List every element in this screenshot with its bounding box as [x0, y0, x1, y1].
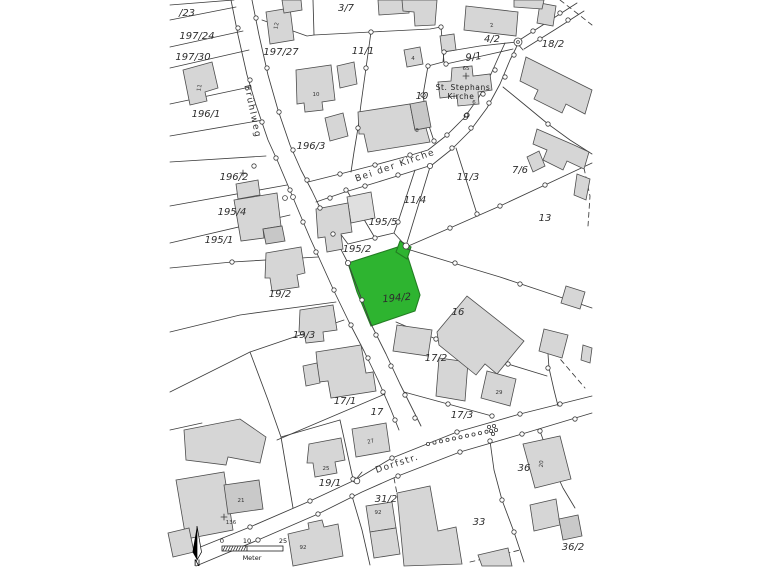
building [464, 6, 518, 36]
building [370, 528, 400, 558]
building [397, 486, 462, 566]
boundary-point [389, 364, 393, 368]
boundary-bead [459, 436, 462, 439]
boundary-point [256, 538, 260, 542]
boundary-point [366, 356, 370, 360]
building-number-11: 11 [196, 84, 203, 92]
boundary-bead [452, 437, 455, 440]
parcel-label-31-2: 31/2 [375, 494, 397, 505]
building-number-8: 8 [415, 128, 419, 134]
boundary-point [354, 478, 360, 484]
boundary-point [444, 62, 448, 66]
boundary-point [360, 298, 364, 302]
boundary-point [236, 26, 240, 30]
boundary-point [432, 139, 436, 143]
boundary-point [316, 512, 320, 516]
boundary-point [274, 156, 278, 160]
boundary-bead [487, 425, 490, 428]
boundary-point [301, 220, 305, 224]
boundary-point [439, 25, 443, 29]
building-number-65: 65 [463, 66, 470, 72]
building [581, 345, 592, 363]
building [288, 520, 343, 566]
boundary-point [345, 260, 350, 265]
building [559, 515, 582, 540]
parcel-label-17-2: 17/2 [425, 353, 447, 364]
boundary-point [308, 499, 312, 503]
boundary-point [277, 110, 281, 114]
boundary-point [512, 53, 516, 57]
parcel-label-9-1: 9/1 [465, 51, 482, 64]
boundary-point [518, 412, 522, 416]
building [366, 502, 396, 532]
building [316, 345, 376, 398]
boundary-point [455, 430, 459, 434]
boundary-point [434, 337, 438, 341]
building [184, 419, 266, 465]
north-label: N [194, 559, 200, 567]
parcel-label-197-27: 197/27 [263, 47, 299, 58]
boundary-bead [439, 440, 442, 443]
scale-tick-0: 0 [220, 537, 224, 545]
parcel-label-13: 13 [539, 213, 552, 224]
parcel-boundary-line [428, 52, 444, 66]
boundary-point [349, 323, 353, 327]
parcel-label-11-4: 11/4 [404, 195, 426, 206]
highlighted-parcel-194-2[interactable] [348, 245, 420, 326]
parcel-label-195-2: 195/2 [343, 244, 372, 255]
parcel-boundary-line [406, 167, 430, 246]
parcel-label-36-2: 36/2 [562, 542, 584, 553]
boundary-bead [472, 433, 475, 436]
boundary-point [518, 282, 522, 286]
boundary-point [446, 402, 450, 406]
boundary-point [252, 164, 256, 168]
boundary-point [566, 18, 570, 22]
boundary-point [448, 226, 452, 230]
building [530, 499, 560, 531]
building [263, 226, 285, 244]
parcel-label-33: 33 [473, 517, 486, 528]
boundary-point [506, 362, 510, 366]
parcel-label-10: 10 [416, 91, 429, 102]
boundary-bead [492, 424, 495, 427]
boundary-point [350, 494, 354, 498]
boundary-point [538, 429, 542, 433]
boundary-point [230, 260, 234, 264]
boundary-point [318, 206, 322, 210]
parcel-label-36: 36 [518, 463, 531, 474]
boundary-point [517, 41, 520, 44]
street-label-Br-hlweg: Brühlweg [241, 84, 262, 139]
boundary-point [381, 390, 385, 394]
parcel-label-19-2: 19/2 [269, 289, 291, 300]
parcel-boundary-line [170, 156, 266, 162]
parcel-label-17-3: 17/3 [451, 410, 473, 421]
boundary-point [445, 133, 449, 137]
boundary-point [426, 64, 430, 68]
parcel-boundary-line [170, 0, 234, 5]
cadastral-map: /23197/24197/30196/1197/273/711/14/218/2… [0, 0, 768, 567]
boundary-point [573, 417, 577, 421]
boundary-point [344, 188, 348, 192]
boundary-point [374, 333, 378, 337]
building [478, 548, 512, 566]
boundary-point [248, 525, 252, 529]
parcel-label-7-6: 7/6 [512, 165, 528, 176]
boundary-bead [485, 430, 488, 433]
boundary-point [283, 196, 288, 201]
boundary-point [254, 16, 258, 20]
boundary-point [500, 498, 504, 502]
boundary-point [493, 68, 497, 72]
boundary-point [512, 530, 516, 534]
boundary-bead [433, 441, 436, 444]
boundary-bead [491, 432, 494, 435]
parcel-label-9: 9 [463, 112, 469, 123]
boundary-point [546, 366, 550, 370]
building [303, 363, 320, 386]
parcel-label-195-5: 195/5 [369, 217, 398, 228]
boundary-point [487, 101, 491, 105]
boundary-point [503, 75, 507, 79]
map-canvas: /23197/24197/30196/1197/273/711/14/218/2… [0, 0, 768, 567]
parcel-boundary-line [313, 0, 314, 35]
parcel-label-18-2: 18/2 [542, 39, 564, 50]
boundary-point [403, 393, 407, 397]
building-number-20: 20 [539, 460, 546, 468]
boundary-point [396, 474, 400, 478]
boundary-point [291, 148, 295, 152]
boundary-point [520, 432, 524, 436]
parcel-label-17-1: 17/1 [334, 396, 356, 407]
boundary-point [265, 66, 269, 70]
boundary-point [403, 243, 409, 249]
building [481, 371, 516, 406]
parcel-label-17: 17 [371, 407, 384, 418]
building [527, 151, 545, 172]
parcel-label-197-30: 197/30 [175, 52, 210, 63]
parcel-label--23: /23 [178, 8, 195, 19]
building [296, 65, 335, 112]
building-number-21: 21 [238, 498, 245, 504]
parcel-label-197-24: 197/24 [179, 31, 214, 42]
building [224, 480, 263, 514]
boundary-point [291, 195, 296, 200]
building-number-92: 92 [375, 510, 382, 516]
church-name-line2: Kirche [447, 92, 474, 101]
scale-tick-25: 25 [279, 537, 287, 545]
boundary-point [331, 232, 335, 236]
building-number-29: 29 [496, 390, 503, 396]
boundary-point [475, 212, 479, 216]
boundary-point [338, 172, 342, 176]
parcel-label-196-1: 196/1 [192, 109, 221, 120]
parcel-label-195-1: 195/1 [205, 235, 234, 246]
scale-tick-10: 10 [243, 537, 251, 545]
boundary-point [332, 288, 336, 292]
street-label-Bei-der-Kirche: Bei der Kirche [354, 148, 437, 185]
boundary-point [481, 92, 485, 96]
building-number-92: 92 [300, 545, 307, 551]
parcel-label-16: 16 [452, 307, 465, 318]
boundary-point [363, 184, 367, 188]
boundary-point [458, 450, 462, 454]
building [574, 174, 590, 200]
parcel-label-196-2: 196/2 [220, 172, 249, 183]
boundary-bead [489, 429, 492, 432]
building-number-25: 25 [323, 466, 330, 472]
boundary-point [356, 126, 360, 130]
boundary-bead [494, 428, 497, 431]
parcel-boundary-line [170, 120, 263, 136]
boundary-bead [446, 438, 449, 441]
boundary-point [396, 173, 400, 177]
boundary-point [328, 196, 332, 200]
scale-unit-label: Meter [243, 554, 262, 562]
boundary-bead [426, 442, 429, 445]
building [325, 113, 348, 141]
boundary-point [453, 261, 457, 265]
boundary-point [469, 126, 473, 130]
boundary-point [531, 29, 535, 33]
building [337, 62, 357, 88]
parcel-label-196-3: 196/3 [297, 141, 326, 152]
building [523, 436, 571, 488]
church-name-line1: St. Stephans [436, 83, 491, 92]
parcel-boundary-line [281, 420, 340, 437]
building-number-12: 12 [273, 22, 280, 30]
building [520, 57, 592, 114]
boundary-point [546, 122, 550, 126]
boundary-point [427, 163, 432, 168]
boundary-point [558, 402, 562, 406]
boundary-bead [465, 434, 468, 437]
boundary-point [393, 418, 397, 422]
building-number-136: 136 [226, 520, 237, 526]
boundary-point [558, 11, 562, 15]
building [539, 329, 568, 358]
boundary-point [450, 146, 454, 150]
building [282, 0, 302, 13]
boundary-point [288, 188, 292, 192]
building [183, 62, 218, 105]
boundary-point [413, 416, 417, 420]
building [168, 528, 194, 557]
boundary-point [543, 183, 547, 187]
boundary-point [490, 414, 494, 418]
building-number-4: 4 [411, 56, 415, 62]
building-number-10: 10 [313, 92, 320, 98]
building [514, 0, 544, 9]
boundary-point [364, 66, 368, 70]
boundary-point [369, 30, 373, 34]
building [265, 247, 305, 291]
boundary-point [305, 178, 309, 182]
boundary-point [314, 250, 318, 254]
parcel-label-3-7: 3/7 [338, 3, 355, 14]
parcel-label-19-3: 19/3 [293, 330, 315, 341]
parcel-boundary-line [490, 441, 524, 562]
parcel-label-11-1: 11/1 [352, 46, 374, 57]
parcel-label-19-1: 19/1 [319, 478, 341, 489]
boundary-point [442, 50, 446, 54]
parcel-label-11-3: 11/3 [457, 172, 479, 183]
parcel-label-195-4: 195/4 [218, 207, 247, 218]
boundary-point [373, 236, 377, 240]
boundary-point [488, 439, 492, 443]
building [440, 34, 456, 52]
building [561, 286, 585, 309]
parcel-label-4-2: 4/2 [484, 34, 500, 45]
boundary-bead [478, 432, 481, 435]
boundary-point [248, 78, 252, 82]
building [393, 325, 432, 356]
boundary-point [498, 204, 502, 208]
